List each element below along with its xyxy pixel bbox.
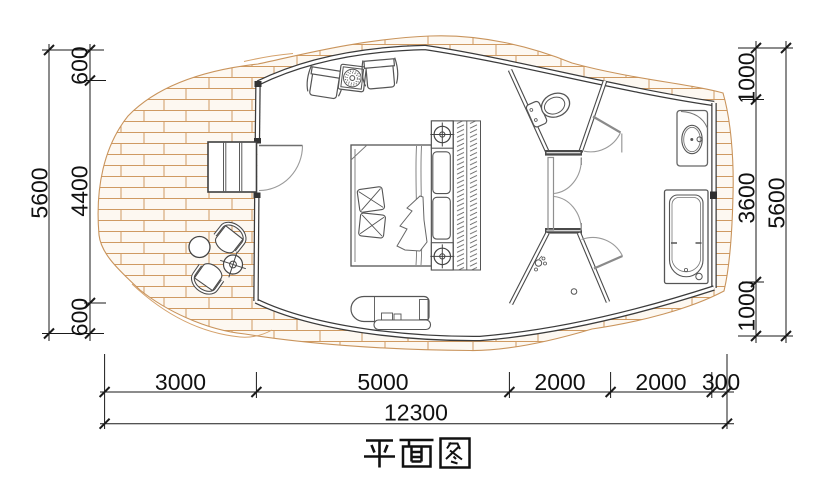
svg-text:3600: 3600 — [734, 172, 760, 223]
svg-text:3000: 3000 — [155, 369, 206, 395]
svg-text:12300: 12300 — [384, 400, 448, 426]
svg-text:600: 600 — [67, 298, 93, 336]
svg-text:600: 600 — [67, 46, 93, 84]
svg-text:1000: 1000 — [734, 52, 760, 103]
svg-text:5600: 5600 — [764, 177, 790, 228]
svg-text:2000: 2000 — [635, 369, 686, 395]
svg-text:1000: 1000 — [734, 280, 760, 331]
svg-text:5600: 5600 — [27, 167, 53, 218]
svg-text:4400: 4400 — [67, 165, 93, 216]
svg-text:5000: 5000 — [357, 369, 408, 395]
svg-text:2000: 2000 — [534, 369, 585, 395]
svg-text:300: 300 — [702, 369, 740, 395]
